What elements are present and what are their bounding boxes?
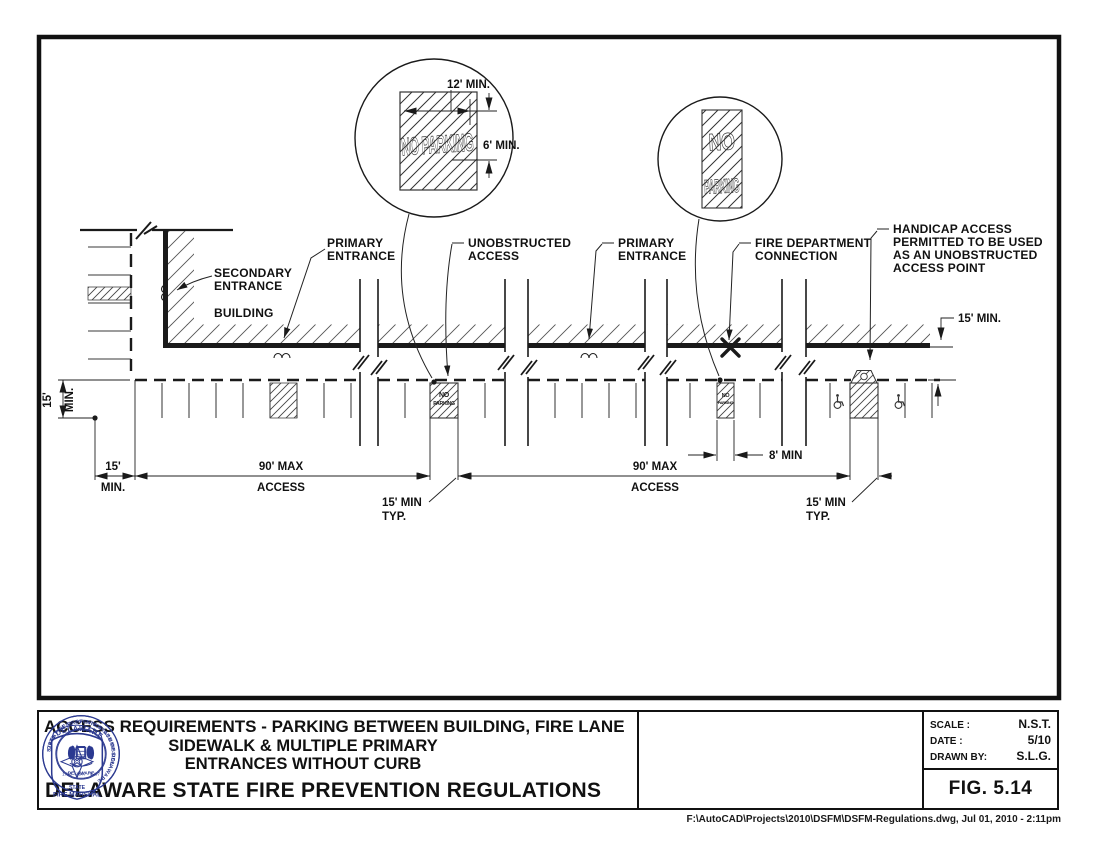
drawing-info: SCALE : N.S.T. DATE : 5/10 DRAWN BY: S.L… bbox=[924, 712, 1057, 770]
svg-text:AS AN UNOBSTRUCTED: AS AN UNOBSTRUCTED bbox=[893, 248, 1038, 262]
title-block: ACCESS REQUIREMENTS - PARKING BETWEEN BU… bbox=[37, 710, 1059, 810]
svg-text:PARKING: PARKING bbox=[433, 401, 455, 407]
drawn-by-value: S.L.G. bbox=[1016, 749, 1051, 763]
left-parking-row bbox=[88, 233, 131, 371]
dim-12ft: 12' MIN. bbox=[447, 79, 490, 91]
svg-text:FIRE DEPARTMENT: FIRE DEPARTMENT bbox=[755, 236, 872, 250]
dim-90-max-2: 90' MAX bbox=[633, 461, 678, 473]
drawing-title-line3: ENTRANCES WITHOUT CURB bbox=[39, 755, 637, 773]
title-cell: ACCESS REQUIREMENTS - PARKING BETWEEN BU… bbox=[39, 712, 639, 808]
label-fire-department-connection: FIRE DEPARTMENT CONNECTION bbox=[729, 236, 872, 340]
scale-label: SCALE : bbox=[930, 719, 970, 733]
drawing-title-line1: ACCESS REQUIREMENTS - PARKING BETWEEN BU… bbox=[39, 712, 637, 737]
wheelchair-icon bbox=[895, 394, 904, 408]
info-cell: SCALE : N.S.T. DATE : 5/10 DRAWN BY: S.L… bbox=[924, 712, 1057, 808]
svg-text:15': 15' bbox=[42, 392, 54, 408]
svg-text:ACCESS: ACCESS bbox=[468, 249, 519, 263]
svg-text:15' MIN.: 15' MIN. bbox=[958, 313, 1001, 325]
primary-entrance-door-icon bbox=[581, 354, 597, 359]
svg-text:HANDICAP ACCESS: HANDICAP ACCESS bbox=[893, 222, 1012, 236]
svg-text:TYP.: TYP. bbox=[806, 511, 830, 523]
figure-number: FIG. 5.14 bbox=[924, 770, 1057, 808]
svg-text:15' MIN: 15' MIN bbox=[382, 497, 422, 509]
commission-text: STATE FIRE PREVENTION COMMISSION bbox=[46, 719, 116, 766]
parking-stalls: NO PARKING NO PARKING bbox=[162, 371, 932, 419]
sheet-border bbox=[39, 37, 1059, 698]
dim-15-typ-right: 15' MIN TYP. bbox=[806, 478, 877, 523]
callout-labels: SECONDARY ENTRANCE BUILDING PRIMARY ENTR… bbox=[177, 222, 1043, 376]
label-secondary-entrance: SECONDARY ENTRANCE bbox=[177, 266, 292, 293]
svg-text:15' MIN: 15' MIN bbox=[806, 497, 846, 509]
dim-fire-lane-width-left: 15' MIN. bbox=[42, 380, 130, 418]
organization-title: DELAWARE STATE FIRE PREVENTION REGULATIO… bbox=[45, 779, 601, 803]
svg-text:CONNECTION: CONNECTION bbox=[755, 249, 838, 263]
building-wall-hatch bbox=[168, 231, 194, 325]
svg-text:ACCESS POINT: ACCESS POINT bbox=[893, 261, 986, 275]
no-parking-marking: NO PARKING bbox=[401, 129, 475, 162]
drawing-sheet: NO PARKING NO PARKING bbox=[0, 0, 1097, 848]
svg-text:PARKING: PARKING bbox=[704, 175, 740, 199]
svg-text:TYP.: TYP. bbox=[382, 511, 406, 523]
svg-text:MIN.: MIN. bbox=[101, 482, 125, 494]
svg-text:ACCESS: ACCESS bbox=[257, 482, 305, 494]
no-parking-stall-unobstructed: NO PARKING bbox=[430, 383, 458, 418]
svg-text:PARKING: PARKING bbox=[718, 400, 734, 405]
commission-bottom: · DELAWARE · bbox=[65, 771, 97, 776]
handicap-stall bbox=[834, 371, 904, 419]
svg-text:ACCESS: ACCESS bbox=[631, 482, 679, 494]
site-plan-drawing: NO PARKING NO PARKING bbox=[0, 0, 1097, 710]
fire-prevention-commission-seal: STATE FIRE PREVENTION COMMISSION · DELAW… bbox=[39, 712, 123, 796]
drawing-title-line2: SIDEWALK & MULTIPLE PRIMARY bbox=[39, 737, 637, 755]
drawn-by-label: DRAWN BY: bbox=[930, 751, 987, 765]
building-face-hatch bbox=[168, 325, 930, 344]
stall-marking: NO bbox=[439, 392, 450, 399]
date-label: DATE : bbox=[930, 735, 963, 749]
hatched-stall bbox=[270, 383, 297, 418]
dim-fire-lane-width-right: 15' MIN. bbox=[929, 313, 1001, 406]
svg-text:ENTRANCE: ENTRANCE bbox=[618, 249, 686, 263]
svg-text:UNOBSTRUCTED: UNOBSTRUCTED bbox=[468, 236, 571, 250]
date-value: 5/10 bbox=[1028, 733, 1051, 747]
dim-6ft: 6' MIN. bbox=[483, 140, 520, 152]
dim-15-typ-left: 15' MIN TYP. bbox=[382, 478, 456, 523]
svg-text:ENTRANCE: ENTRANCE bbox=[214, 279, 282, 293]
scale-value: N.S.T. bbox=[1018, 717, 1051, 731]
dim-8-min: 8' MIN bbox=[688, 450, 802, 462]
dim-15-min: 15' bbox=[105, 461, 121, 473]
svg-text:STATE FIRE PREVENTION COMMISSI: STATE FIRE PREVENTION COMMISSION bbox=[46, 719, 116, 766]
svg-text:PERMITTED TO BE USED: PERMITTED TO BE USED bbox=[893, 235, 1043, 249]
svg-text:SECONDARY: SECONDARY bbox=[214, 266, 292, 280]
wheelchair-icon bbox=[834, 394, 843, 408]
seals-cell: GREAT SEAL OF THE STATE OF DELAWARE 1793… bbox=[639, 712, 924, 808]
no-parking-stall-fdc: NO PARKING bbox=[717, 383, 734, 418]
svg-text:ENTRANCE: ENTRANCE bbox=[327, 249, 395, 263]
svg-text:PRIMARY: PRIMARY bbox=[327, 236, 383, 250]
svg-text:NO: NO bbox=[722, 393, 730, 399]
primary-entrance-door-icon bbox=[274, 354, 290, 359]
svg-text:8' MIN: 8' MIN bbox=[769, 450, 802, 462]
dim-chain-bottom: 15' MIN. 90' MAX ACCESS 90' MAX ACCESS bbox=[92, 380, 892, 494]
file-path-footer: F:\AutoCAD\Projects\2010\DSFM\DSFM-Regul… bbox=[686, 814, 1061, 825]
svg-text:MIN.: MIN. bbox=[64, 388, 76, 412]
entrance-walkways bbox=[352, 279, 816, 446]
hatched-stall bbox=[88, 287, 131, 300]
svg-text:NO: NO bbox=[708, 128, 735, 156]
label-primary-entrance-2: PRIMARY ENTRANCE bbox=[589, 236, 686, 339]
svg-text:PRIMARY: PRIMARY bbox=[618, 236, 674, 250]
label-building: BUILDING bbox=[214, 306, 274, 320]
dim-90-max-1: 90' MAX bbox=[259, 461, 304, 473]
